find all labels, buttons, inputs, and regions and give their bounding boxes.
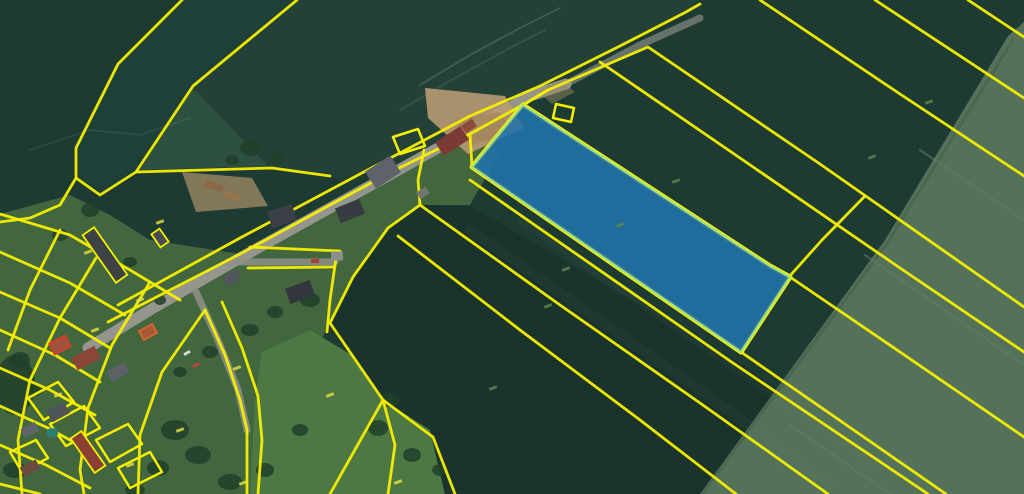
tree <box>403 448 421 462</box>
tree <box>185 446 211 464</box>
tree <box>161 420 189 440</box>
tree <box>81 203 99 217</box>
vehicle-red <box>311 259 319 263</box>
tree <box>173 367 187 377</box>
parcel-boundary-garden-line <box>470 134 472 167</box>
tree <box>218 474 242 490</box>
tree <box>292 424 308 436</box>
parcel-boundary-garden-line <box>248 267 335 268</box>
pool <box>46 428 58 438</box>
tree <box>202 346 218 358</box>
tree <box>123 257 137 267</box>
cadastral-map-canvas[interactable] <box>0 0 1024 494</box>
tree <box>267 306 283 318</box>
building-shed <box>331 252 343 261</box>
cadastral-map-viewport[interactable] <box>0 0 1024 494</box>
tree <box>270 152 286 164</box>
tree <box>241 324 259 336</box>
tree <box>225 155 239 165</box>
tree <box>240 140 260 156</box>
